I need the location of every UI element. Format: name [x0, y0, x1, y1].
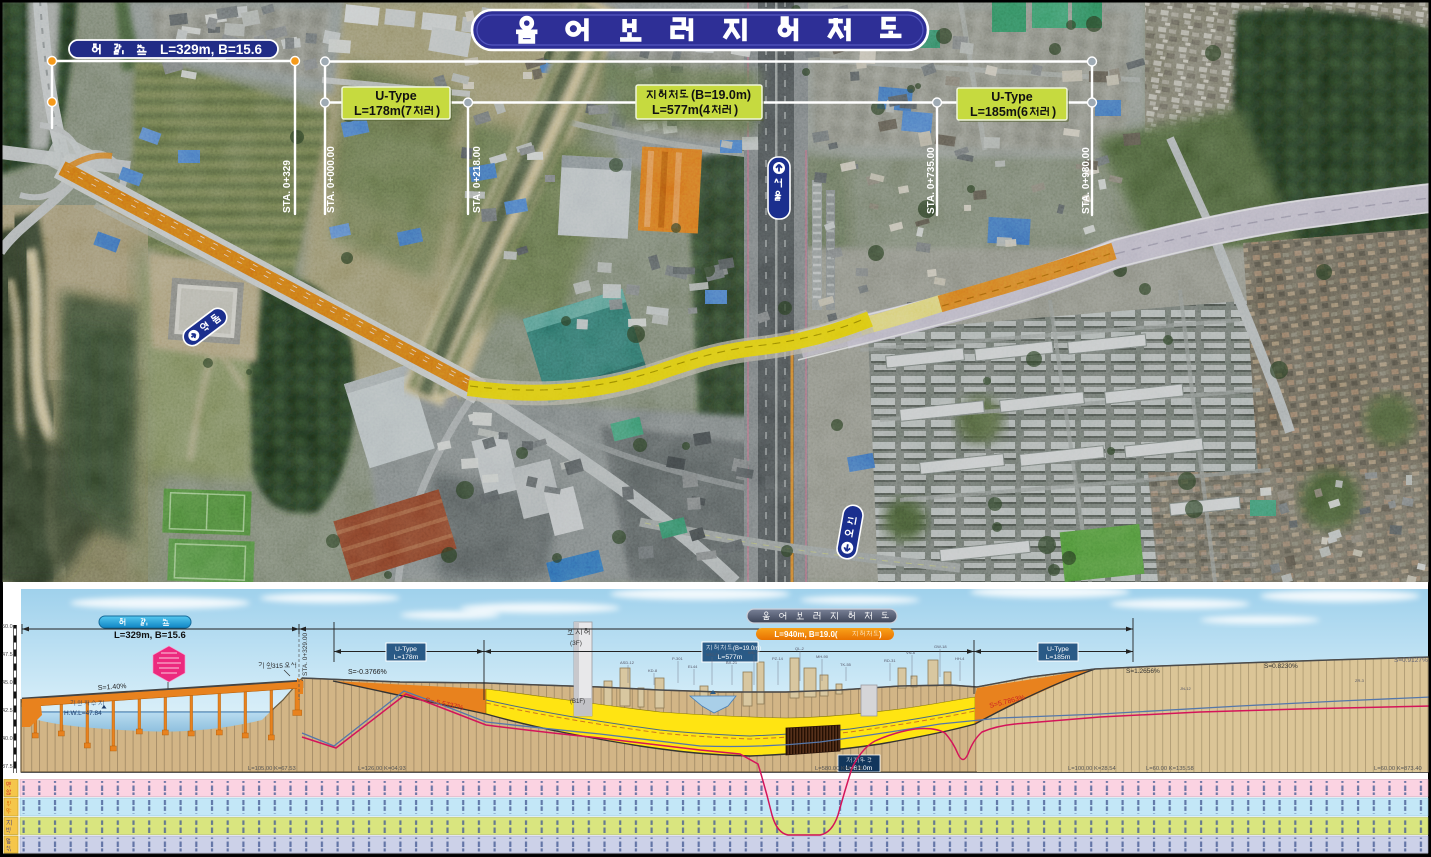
svg-text:L=185m: L=185m — [1046, 654, 1071, 661]
svg-text:VN-6: VN-6 — [906, 650, 916, 655]
svg-text:S=-0.3766%: S=-0.3766% — [348, 669, 387, 676]
svg-text:EL44: EL44 — [688, 664, 698, 669]
svg-text:STA. 0+980.00: STA. 0+980.00 — [1081, 147, 1092, 214]
svg-text:L=178m: L=178m — [394, 654, 419, 661]
svg-text:(B=19.0m): (B=19.0m) — [691, 88, 751, 102]
svg-text:STA. 0+329: STA. 0+329 — [282, 160, 293, 213]
svg-text:S=0.9127%: S=0.9127% — [1394, 657, 1428, 664]
svg-text:37.5: 37.5 — [2, 764, 13, 770]
svg-text:U-Type: U-Type — [375, 89, 416, 103]
svg-text:NTC-3: NTC-3 — [706, 652, 719, 657]
svg-text:L=329m, B=15.6: L=329m, B=15.6 — [114, 630, 186, 641]
svg-text:BX-21: BX-21 — [726, 660, 738, 665]
svg-text:U-Type: U-Type — [1047, 646, 1069, 653]
svg-text:S=0.8230%: S=0.8230% — [1264, 663, 1298, 670]
svg-text:42.5: 42.5 — [2, 708, 13, 714]
svg-text:L=105.00 K=67.53: L=105.00 K=67.53 — [248, 766, 296, 772]
svg-text:): ) — [879, 630, 882, 639]
svg-text:L=60.00 K=873.40: L=60.00 K=873.40 — [1374, 766, 1422, 772]
svg-text:L=60.00 K=135.58: L=60.00 K=135.58 — [1146, 766, 1194, 772]
svg-text:WD-7: WD-7 — [748, 650, 759, 655]
svg-text:ASD-12: ASD-12 — [620, 660, 635, 665]
svg-text:L=100.00 K=28.54: L=100.00 K=28.54 — [1068, 766, 1116, 772]
svg-text:(3F): (3F) — [570, 640, 582, 647]
svg-text:): ) — [734, 103, 738, 117]
svg-text:L=126.00 K=04.93: L=126.00 K=04.93 — [358, 766, 406, 772]
svg-text:STA. 0+000.00: STA. 0+000.00 — [326, 146, 337, 213]
svg-text:U-Type: U-Type — [991, 90, 1032, 104]
svg-text:STA. 0+218.00: STA. 0+218.00 — [472, 146, 483, 213]
svg-text:MH-90: MH-90 — [816, 654, 829, 659]
svg-text:L=577m(4: L=577m(4 — [652, 103, 710, 117]
svg-text:L=580.00 K=51.08: L=580.00 K=51.08 — [815, 766, 863, 772]
svg-text:P-301: P-301 — [672, 656, 683, 661]
svg-text:40.0: 40.0 — [2, 736, 13, 742]
svg-text:STA. 0+735.00: STA. 0+735.00 — [926, 147, 937, 214]
svg-text:TK-55: TK-55 — [840, 662, 852, 667]
svg-text:L=329m, B=15.6: L=329m, B=15.6 — [160, 42, 263, 57]
svg-text:KD-8: KD-8 — [648, 668, 658, 673]
svg-text:315: 315 — [272, 663, 283, 670]
svg-text:S=1.2656%: S=1.2656% — [1126, 668, 1160, 675]
svg-text:L=178m(7: L=178m(7 — [354, 104, 412, 118]
svg-text:L=940m, B=19.0(: L=940m, B=19.0( — [774, 630, 837, 639]
svg-text:RD-31: RD-31 — [884, 658, 896, 663]
svg-text:QL-2: QL-2 — [795, 646, 805, 651]
svg-text:50.0: 50.0 — [2, 624, 13, 630]
svg-text:ZR-3: ZR-3 — [1355, 678, 1365, 683]
svg-text:JN-12: JN-12 — [1180, 686, 1191, 691]
svg-text:H.W.L=47.84: H.W.L=47.84 — [64, 710, 102, 717]
svg-text:GW-18: GW-18 — [934, 644, 947, 649]
svg-text:STA. 0+329.00: STA. 0+329.00 — [302, 633, 309, 676]
svg-text:PZ-14: PZ-14 — [772, 656, 784, 661]
svg-text:): ) — [1052, 105, 1056, 119]
svg-text:(B1F): (B1F) — [570, 699, 585, 705]
svg-text:47.5: 47.5 — [2, 652, 13, 658]
svg-text:U-Type: U-Type — [395, 646, 417, 653]
svg-text:L=185m(6: L=185m(6 — [970, 105, 1028, 119]
svg-text:): ) — [436, 104, 440, 118]
svg-text:45.0: 45.0 — [2, 680, 13, 686]
svg-text:HH-4: HH-4 — [955, 656, 965, 661]
